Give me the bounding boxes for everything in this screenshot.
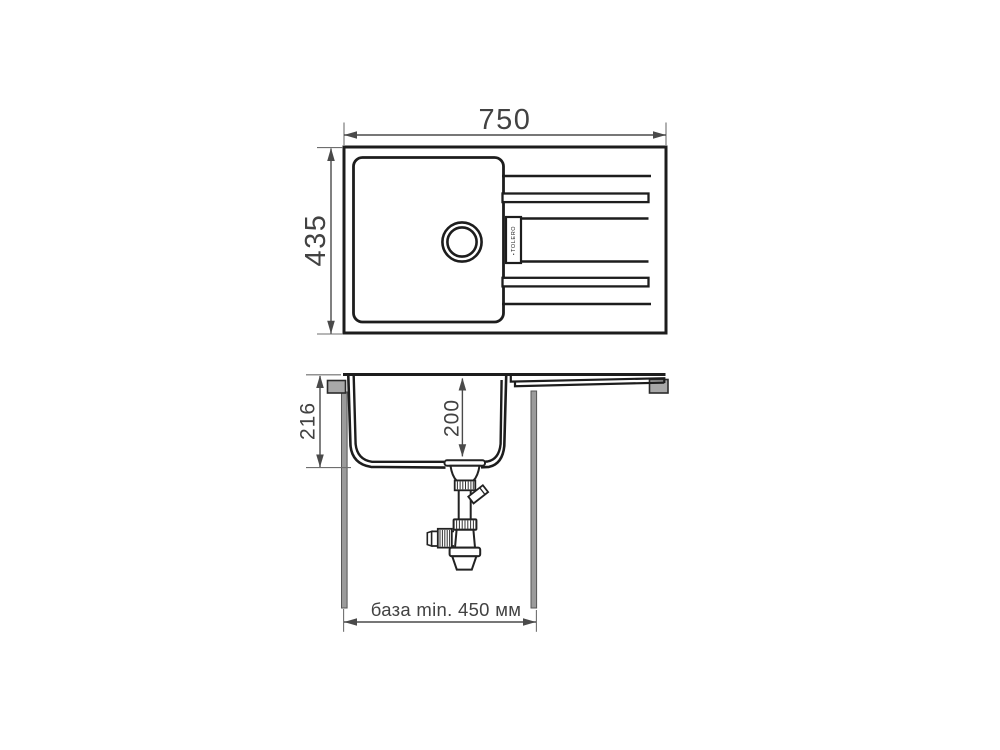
bowl-inner-wall bbox=[354, 376, 502, 462]
trap-cup bbox=[452, 556, 476, 569]
mounting-clamp-left bbox=[328, 381, 346, 394]
sink-section-profile bbox=[343, 375, 666, 468]
brand-logo-icon: ▪ bbox=[511, 252, 516, 254]
arrowhead-right-icon bbox=[653, 131, 666, 139]
cabinet-panel-left bbox=[342, 392, 348, 608]
cabinet-panel-right bbox=[531, 391, 537, 608]
siphon-assembly bbox=[427, 460, 488, 569]
coupling-nut-ribs bbox=[457, 520, 474, 528]
thread-ring-ribs bbox=[457, 482, 473, 490]
section-view bbox=[306, 375, 668, 632]
brand-name: TOLERO bbox=[511, 225, 517, 251]
drainboard-upper bbox=[511, 375, 665, 383]
outlet-end-cap bbox=[427, 531, 431, 546]
top-view bbox=[344, 147, 666, 333]
arrowhead-up-icon bbox=[327, 148, 335, 161]
arrowhead-down-icon bbox=[327, 321, 335, 334]
total-depth-dimension-label: 216 bbox=[297, 385, 321, 458]
trap-body bbox=[455, 530, 475, 548]
brand-label: ▪TOLERO bbox=[508, 211, 519, 270]
base-cabinet-dimension-label: база min. 450 мм bbox=[346, 599, 546, 621]
trap-shoulder bbox=[450, 548, 481, 557]
width-dimension-label: 750 bbox=[453, 104, 557, 137]
drain-icon bbox=[442, 222, 481, 261]
height-dimension-label: 435 bbox=[302, 188, 330, 292]
drain-body bbox=[451, 466, 480, 481]
bowl-depth-dimension-label: 200 bbox=[440, 382, 464, 455]
bowl-outer-wall bbox=[348, 376, 506, 468]
arrowhead-left-icon bbox=[344, 131, 357, 139]
drainboard-grooves bbox=[502, 176, 651, 304]
technical-drawing: 750 435 216 200 база min. 450 мм ▪TOLERO bbox=[0, 0, 1000, 750]
drainboard-lower bbox=[515, 382, 664, 386]
